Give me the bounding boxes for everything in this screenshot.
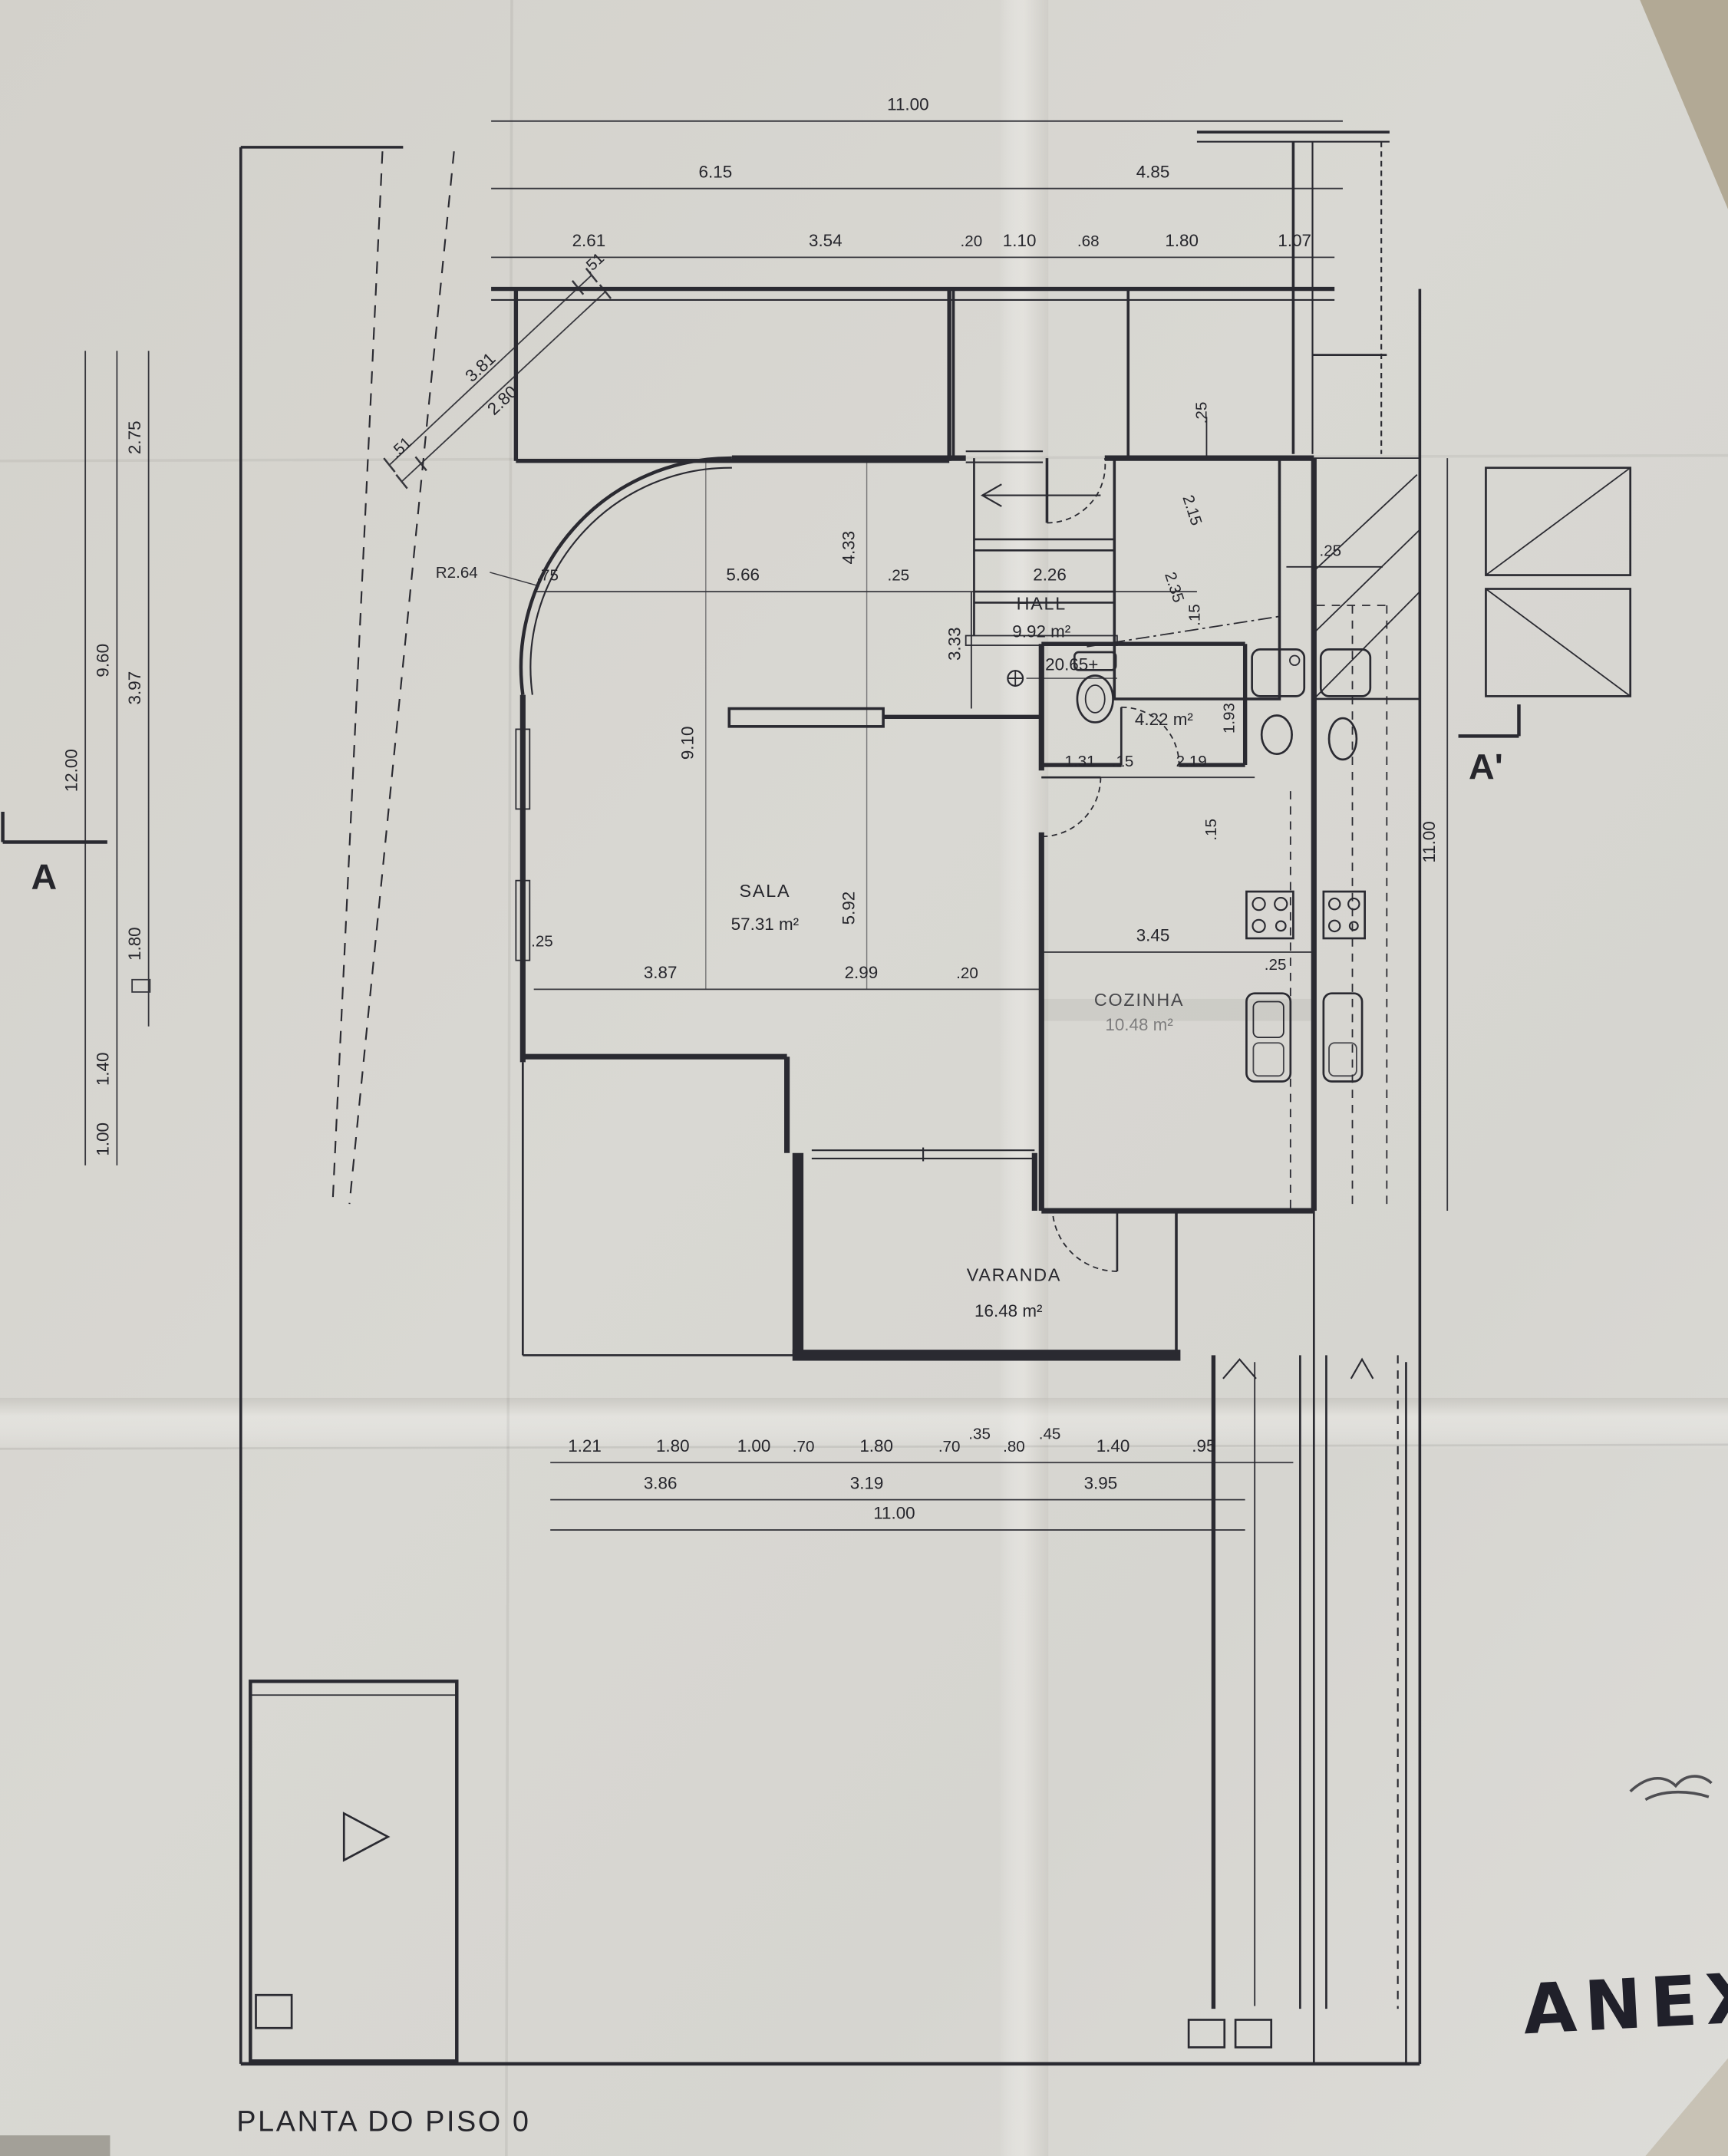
dim-label: 3.45 <box>1136 926 1170 945</box>
dim-label: .15 <box>1186 604 1203 626</box>
room-label-hall: HALL <box>1017 593 1067 613</box>
dim-label: .70 <box>938 1438 961 1455</box>
dim-label: .15 <box>1112 753 1134 770</box>
dim-label: 1.80 <box>125 927 144 961</box>
dim-label: 1.93 <box>1220 703 1238 734</box>
dim-label: 1.21 <box>568 1436 602 1455</box>
room-area-sala: 57.31 m² <box>731 915 800 934</box>
level-marker-icon <box>1007 671 1023 686</box>
dim-label: 4.33 <box>839 531 858 565</box>
scanned-floor-plan-photo: 11.00 6.15 4.85 2.61 3.54 .20 1.10 .68 1… <box>0 0 1728 2156</box>
scan-shadow <box>0 2135 110 2156</box>
dim-label: 12.00 <box>61 749 81 792</box>
dim-label: 3.87 <box>644 963 678 982</box>
dim-label: .25 <box>1319 542 1341 559</box>
bay-radius-label: R2.64 <box>436 564 478 582</box>
room-area-wc: 4.22 m² <box>1135 710 1193 729</box>
dim-label: 3.19 <box>850 1473 884 1492</box>
dim-label: .25 <box>887 567 909 585</box>
dim-label: 1.00 <box>737 1436 771 1455</box>
paper-sheet <box>0 0 1728 2156</box>
dim-label: 1.31 <box>1064 753 1095 770</box>
dim-label: 11.00 <box>873 1504 915 1523</box>
dim-label: 6.15 <box>699 162 733 181</box>
dim-label: .20 <box>961 232 983 250</box>
room-area-varanda: 16.48 m² <box>974 1301 1043 1320</box>
dim-label: 1.40 <box>94 1053 113 1086</box>
dim-label: 1.80 <box>859 1436 893 1455</box>
dim-label: 4.85 <box>1136 162 1170 181</box>
section-letter-a: A <box>31 856 58 896</box>
dim-label: 2.19 <box>1176 753 1207 770</box>
dim-label: 2.75 <box>125 420 144 454</box>
floor-plan-drawing: 11.00 6.15 4.85 2.61 3.54 .20 1.10 .68 1… <box>0 0 1728 2156</box>
dim-label: .25 <box>531 933 553 951</box>
room-area-cozinha: 10.48 m² <box>1105 1015 1173 1034</box>
dim-label: .75 <box>536 567 559 585</box>
dim-label: .25 <box>1192 402 1210 424</box>
room-area-hall: 9.92 m² <box>1012 621 1070 641</box>
dim-label: 1.80 <box>1165 231 1199 250</box>
dim-label: .70 <box>793 1438 815 1455</box>
dim-label: 5.66 <box>726 565 760 585</box>
dim-label: .25 <box>1265 956 1287 974</box>
dim-label: .80 <box>1003 1438 1025 1455</box>
dim-label: 1.40 <box>1096 1436 1130 1455</box>
room-label-sala: SALA <box>740 881 791 901</box>
dim-label: 5.92 <box>839 892 858 925</box>
dim-label: .45 <box>1039 1426 1061 1443</box>
dim-label: 2.26 <box>1033 565 1067 585</box>
dim-label: .95 <box>1192 1436 1215 1455</box>
plan-title: PLANTA DO PISO 0 <box>236 2105 530 2138</box>
dim-label: 2.99 <box>845 963 879 982</box>
dim-label: 9.10 <box>678 727 697 760</box>
dim-label: .35 <box>968 1426 991 1443</box>
dim-label: 1.00 <box>94 1123 113 1156</box>
dim-label: 9.60 <box>94 644 113 677</box>
level-value: 20.65+ <box>1045 654 1098 674</box>
annex-handwritten-label: ANEXO <box>1521 1954 1728 2050</box>
dim-label: 3.95 <box>1084 1473 1118 1492</box>
dim-label: .20 <box>956 964 978 982</box>
dim-label: 11.00 <box>887 94 928 114</box>
dim-label: 3.86 <box>644 1473 678 1492</box>
dim-label: 1.10 <box>1003 231 1037 250</box>
room-label-cozinha: COZINHA <box>1094 990 1184 1010</box>
dim-label: 11.00 <box>1420 821 1439 862</box>
dim-label: 1.07 <box>1278 231 1311 250</box>
section-letter-a-prime: A' <box>1469 747 1503 786</box>
dim-label: 1.80 <box>656 1436 690 1455</box>
room-label-varanda: VARANDA <box>967 1265 1061 1285</box>
dim-label: 3.97 <box>125 671 144 705</box>
dim-label: .68 <box>1077 232 1100 250</box>
dim-label: 3.33 <box>945 627 965 661</box>
dim-label: .15 <box>1202 819 1220 841</box>
dim-label: 2.61 <box>572 231 606 250</box>
dim-label: 3.54 <box>809 231 843 250</box>
